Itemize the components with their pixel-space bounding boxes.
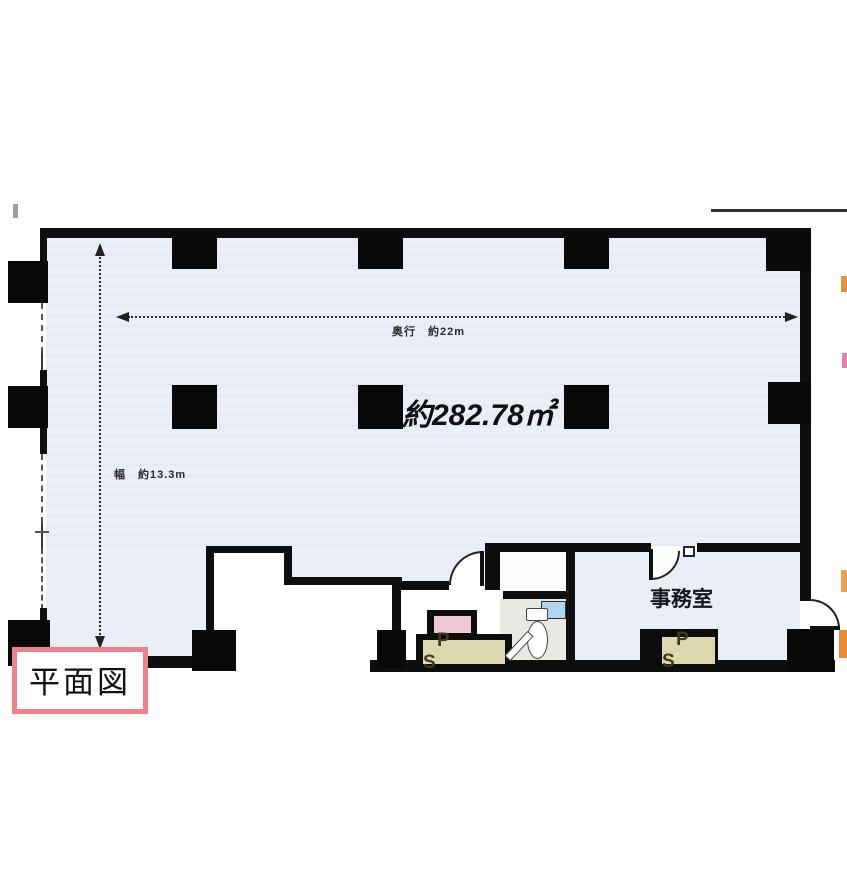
wall-left-seg [40, 228, 47, 265]
column [564, 385, 609, 429]
window-section [41, 548, 43, 610]
window-section [41, 454, 43, 523]
balcony-line [711, 209, 847, 212]
edge-mark [839, 630, 847, 658]
column [172, 232, 217, 269]
door-leaf [480, 551, 484, 586]
main-floor-left-strip [46, 546, 212, 658]
door-jamb [683, 546, 695, 557]
wall-left-seg [40, 428, 47, 454]
wall-top [40, 228, 811, 238]
toilet-tank [526, 608, 548, 621]
column [358, 232, 403, 269]
depth-dimension-label: 奥行 約22m [392, 323, 465, 339]
edge-mark [841, 570, 847, 592]
edge-mark [842, 353, 847, 368]
arrow-up-icon [95, 243, 105, 256]
column [766, 232, 811, 271]
column [377, 630, 406, 668]
edge-mark [841, 276, 847, 292]
area-label: 約282.78㎡ [402, 390, 554, 434]
width-dimension-label: 幅 約13.3m [114, 466, 186, 482]
wall-tick [35, 531, 49, 533]
wall-door-sill [392, 581, 449, 590]
office-room-label: 事務室 [650, 583, 713, 613]
width-dimension-line [99, 254, 101, 638]
toilet-bowl [527, 621, 548, 659]
window-section [41, 303, 43, 353]
column [8, 386, 48, 428]
plan-title-box: 平面図 [12, 647, 148, 714]
arrow-left-icon [116, 312, 129, 322]
wall-notch-bottom [284, 577, 402, 585]
column [787, 629, 834, 671]
pipe-shaft-label: P S [662, 637, 715, 664]
column [8, 261, 48, 303]
wall-toilet-partition [503, 591, 566, 599]
column [358, 385, 403, 429]
column [192, 630, 236, 671]
arrow-right-icon [785, 312, 798, 322]
floor-plan-canvas: P S P S 奥行 約22m 幅 約13.3m 約282.78㎡ 事務室 平面… [0, 0, 847, 874]
wall-toilet-right [566, 551, 575, 663]
top-left-tick [13, 204, 18, 218]
depth-dimension-line [128, 316, 788, 318]
column [172, 385, 217, 429]
door-leaf [810, 626, 840, 630]
wall-left-thin [41, 523, 43, 548]
column [564, 232, 609, 269]
wall-lower-top-right [697, 543, 811, 552]
column [768, 382, 811, 424]
door-arc [810, 599, 840, 629]
door-leaf [649, 549, 653, 580]
wall-notch-top [206, 546, 292, 553]
pipe-shaft-label: P S [423, 640, 505, 664]
